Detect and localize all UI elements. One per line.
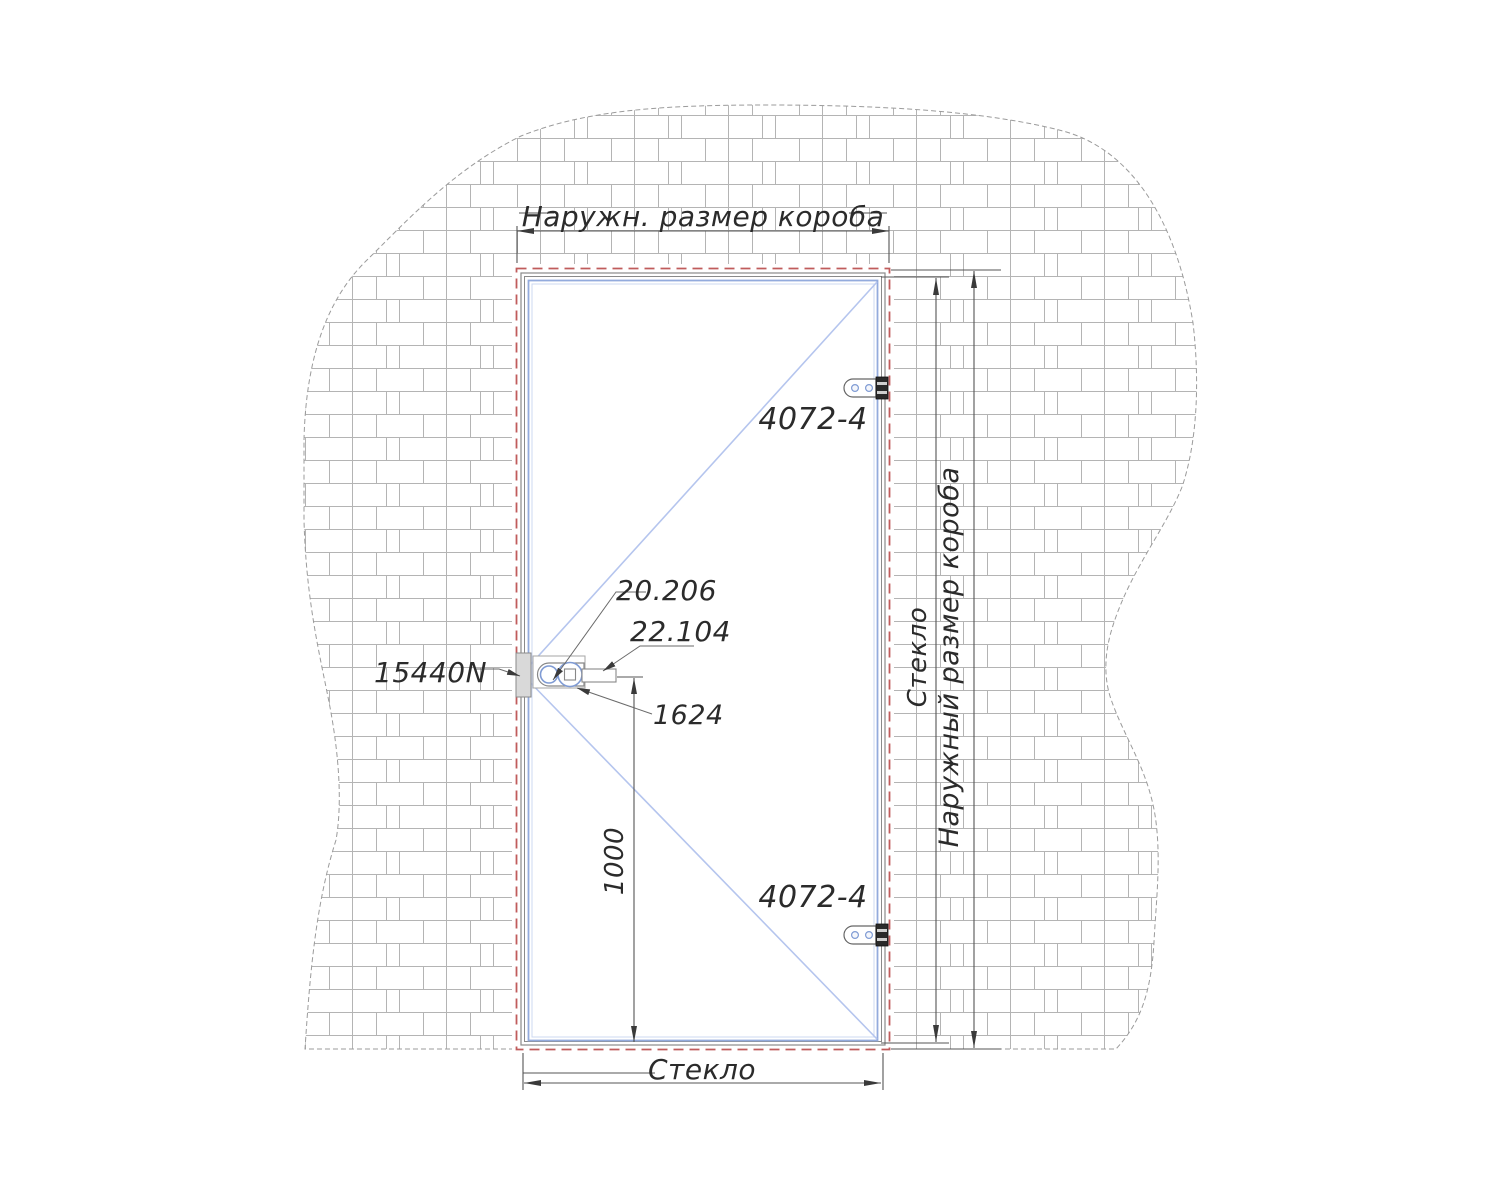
hinge-bottom-block-slit2: [877, 938, 887, 941]
hinge-top-label: 4072-4: [758, 402, 867, 437]
dim-glass-width-arrow-left: [524, 1080, 541, 1086]
dim-glass-height-label: Стекло: [903, 607, 933, 708]
drawing-canvas: Наружн. размер короба Стекло Стекло Нару…: [0, 0, 1500, 1200]
dim-handle-height-label: 1000: [600, 827, 630, 895]
door-drawing-svg: Наружн. размер короба Стекло Стекло Нару…: [0, 0, 1500, 1200]
hinge-bottom-screw-right: [866, 932, 873, 939]
handle-label: 22.104: [630, 615, 731, 648]
dim-glass-width-label: Стекло: [648, 1053, 756, 1086]
lock-cylinder-ring: [541, 666, 558, 683]
hinge-top-block: [876, 377, 888, 399]
hinge-bottom-screw-left: [852, 932, 859, 939]
hinge-top-block-slit2: [877, 391, 887, 394]
dim-glass-width-arrow-right: [864, 1080, 881, 1086]
hinge-top-screw-right: [866, 385, 873, 392]
brick-wall: [304, 105, 1197, 1054]
hinge-top-screw-left: [852, 385, 859, 392]
hinge-bottom-block-slit1: [877, 929, 887, 932]
fitting-label: 1624: [653, 700, 724, 731]
dim-outer-height-label: Наружный размер короба: [934, 467, 965, 848]
handle-spindle: [565, 669, 576, 680]
hinge-bottom-block: [876, 924, 888, 946]
handle-lever: [582, 669, 616, 682]
hinge-top-block-slit1: [877, 382, 887, 385]
dim-outer-width-label: Наружн. размер короба: [522, 200, 885, 233]
lock-label: 15440N: [374, 656, 487, 689]
cylinder-label: 20.206: [616, 574, 717, 607]
hinge-top: [844, 377, 888, 399]
hinge-bottom: [844, 924, 888, 946]
hinge-bottom-label: 4072-4: [758, 880, 867, 915]
